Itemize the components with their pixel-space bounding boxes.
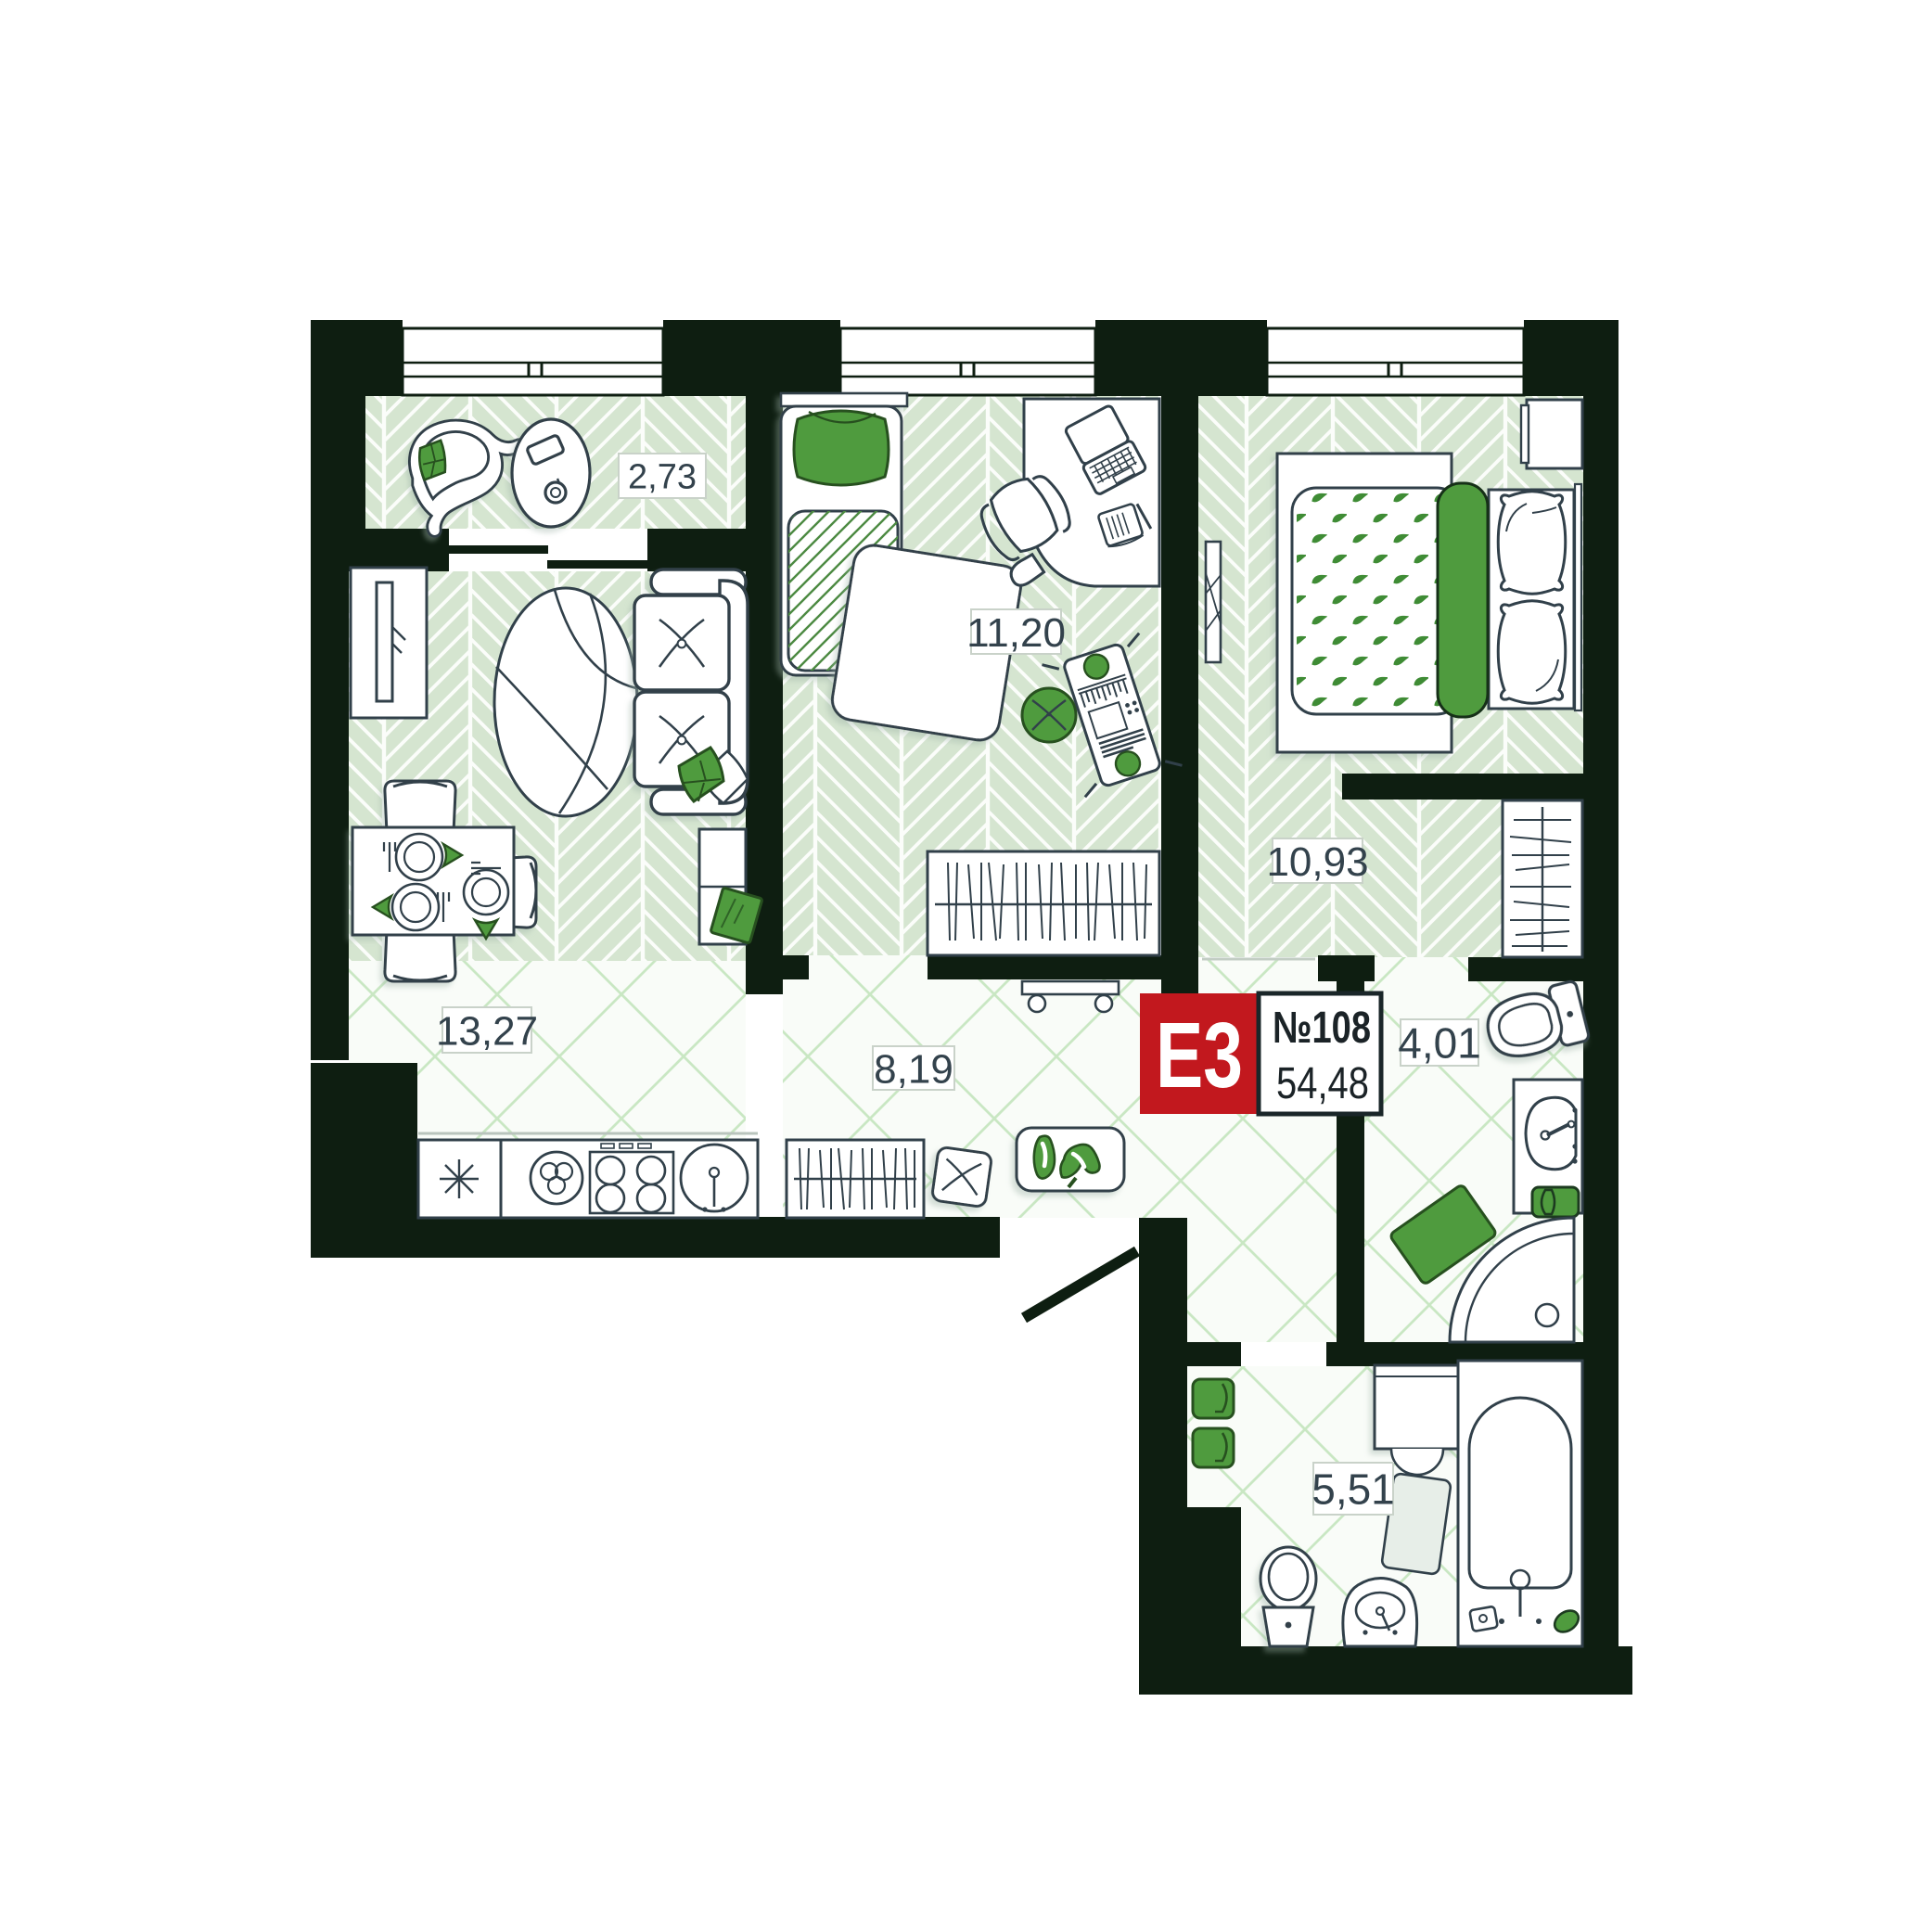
svg-text:Е3: Е3 — [1156, 1004, 1243, 1107]
svg-text:2,73: 2,73 — [628, 458, 697, 497]
svg-text:13,27: 13,27 — [436, 1008, 538, 1054]
svg-text:8,19: 8,19 — [874, 1046, 953, 1092]
svg-text:№108: №108 — [1273, 1004, 1371, 1053]
svg-text:54,48: 54,48 — [1276, 1059, 1369, 1108]
svg-text:4,01: 4,01 — [1398, 1019, 1481, 1068]
svg-text:5,51: 5,51 — [1311, 1465, 1395, 1514]
svg-text:10,93: 10,93 — [1266, 839, 1368, 885]
svg-text:11,20: 11,20 — [966, 610, 1066, 656]
